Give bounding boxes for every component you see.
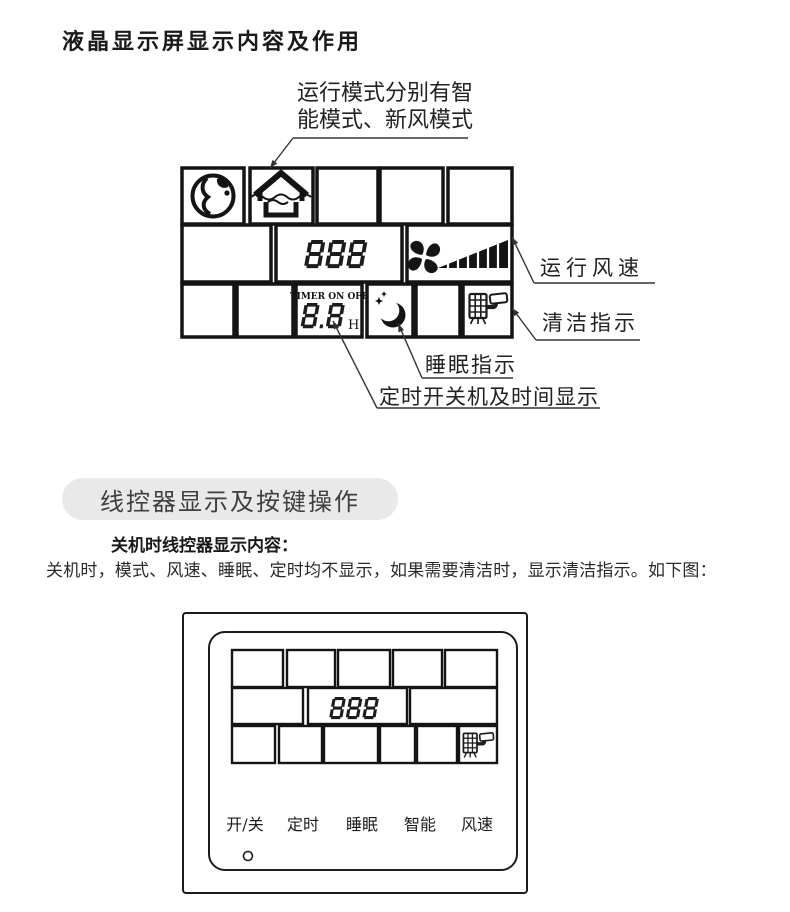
manual-page: 液晶显示屏显示内容及作用: [0, 0, 790, 912]
label-sleep: 睡眠指示: [425, 349, 517, 379]
mode-annotation-line1: 运行模式分别有智: [275, 80, 495, 107]
subheading: 关机时线控器显示内容：: [111, 531, 298, 556]
label-clean: 清洁指示: [542, 307, 638, 337]
button-label-timer: 定时: [287, 811, 319, 835]
timer-unit: H: [348, 318, 359, 333]
section-heading-text: 线控器显示及按键操作: [100, 482, 360, 517]
controller-diagram: 开/关 定时 睡眠 智能 风速: [180, 605, 530, 900]
button-label-power: 开/关: [226, 811, 263, 835]
controller-graphic: [180, 605, 530, 900]
body-text: 关机时，模式、风速、睡眠、定时均不显示，如果需要清洁时，显示清洁指示。如下图：: [46, 556, 746, 581]
mode-annotation: 运行模式分别有智 能模式、新风模式: [275, 80, 495, 134]
button-label-sleep: 睡眠: [346, 811, 378, 835]
button-label-fanspeed: 风速: [461, 811, 493, 835]
mode-annotation-line2: 能模式、新风模式: [275, 107, 495, 134]
lcd-diagram: TIMER ON OFF H: [150, 75, 670, 420]
timer-header: TIMER ON OFF: [290, 292, 369, 302]
section-heading: 线控器显示及按键操作: [62, 478, 398, 520]
label-timer: 定时开关机及时间显示: [379, 381, 599, 411]
button-label-smart: 智能: [404, 811, 436, 835]
page-title: 液晶显示屏显示内容及作用: [62, 24, 362, 56]
label-fan-speed: 运行风速: [540, 252, 644, 282]
